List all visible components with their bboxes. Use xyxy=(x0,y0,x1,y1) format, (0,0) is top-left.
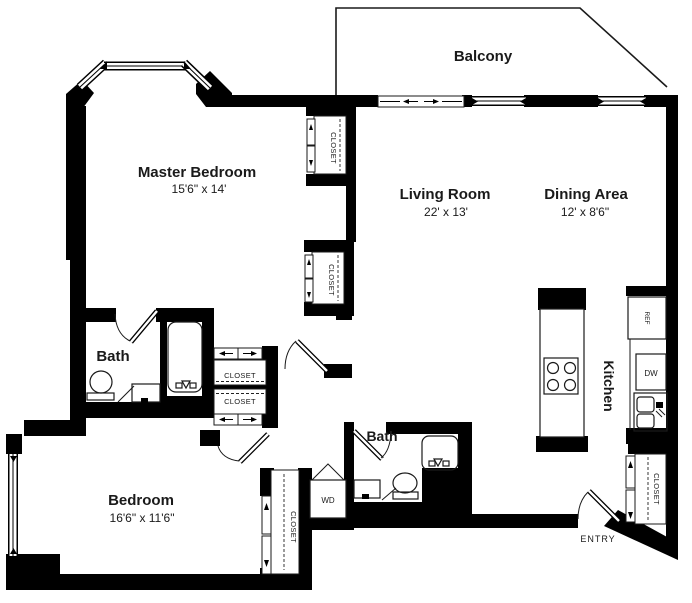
entry-closet-label: CLOSET xyxy=(652,473,661,505)
tub-faucet xyxy=(176,383,182,388)
kitchen: Kitchen REF DW xyxy=(540,297,667,437)
closet-sliding-door xyxy=(305,255,313,278)
toilet-icon xyxy=(393,473,417,493)
toilet-icon xyxy=(90,371,112,393)
sink-faucet-line xyxy=(659,409,665,415)
floor-plan-drawing: Balcony xyxy=(0,0,692,603)
hall-closet-upper-label: CLOSET xyxy=(224,371,256,380)
master-bath-label: Bath xyxy=(96,348,129,365)
vanity-counter-edge xyxy=(382,488,396,500)
bifold-door xyxy=(312,464,344,480)
master-bath-door xyxy=(115,311,157,342)
second-bath-label: Bath xyxy=(366,428,397,444)
closet-sliding-door xyxy=(307,146,315,172)
balcony: Balcony xyxy=(336,8,667,95)
entry-closet: CLOSET xyxy=(626,454,666,524)
closet-sliding-door xyxy=(262,496,271,534)
living-room-dims: 22' x 13' xyxy=(424,205,468,219)
floor-plan: Balcony xyxy=(0,0,692,603)
sink-basin xyxy=(637,397,654,412)
toilet-base xyxy=(87,393,114,400)
tub-faucet xyxy=(429,461,435,466)
master-bedroom-label: Master Bedroom xyxy=(138,164,256,181)
bedroom-label: Bedroom xyxy=(108,492,174,509)
balcony-sliding-door xyxy=(378,96,464,107)
bathtub-icon xyxy=(422,436,458,470)
sink-faucet xyxy=(656,402,663,408)
living-room-label: Living Room xyxy=(400,186,491,203)
sink-faucet xyxy=(141,398,148,403)
sink-faucet xyxy=(362,494,369,499)
sink-faucet-line xyxy=(656,411,662,417)
dining-window xyxy=(598,98,646,105)
entry-door xyxy=(578,491,619,521)
bedroom-dims: 16'6" x 11'6" xyxy=(110,511,175,525)
bay-window-left xyxy=(80,63,106,87)
bedroom-door xyxy=(218,434,268,462)
washer-dryer-label: WD xyxy=(321,496,335,505)
balcony-label: Balcony xyxy=(454,48,513,65)
tub-faucet xyxy=(443,461,449,466)
dishwasher-label: DW xyxy=(644,369,658,378)
washer-dryer: WD xyxy=(310,464,346,518)
closet-sliding-door xyxy=(305,279,313,302)
sink-basin xyxy=(637,414,654,428)
tub-faucet xyxy=(190,383,196,388)
living-room-window-1 xyxy=(472,98,526,105)
master-bedroom-door xyxy=(285,341,327,371)
master-closet-upper-label: CLOSET xyxy=(329,132,338,164)
bedroom-closet-label: CLOSET xyxy=(289,511,298,543)
entry-label: ENTRY xyxy=(580,534,615,544)
refrigerator-label: REF xyxy=(643,312,650,325)
closet-sliding-door xyxy=(307,119,315,145)
bedroom-window xyxy=(7,446,20,562)
closet-sliding-door xyxy=(626,456,635,488)
master-bedroom-dims: 15'6" x 14' xyxy=(172,182,227,196)
kitchen-label: Kitchen xyxy=(601,360,617,411)
hall-closet-lower-label: CLOSET xyxy=(224,397,256,406)
closet-sliding-door xyxy=(262,536,271,574)
master-closet-lower: CLOSET xyxy=(305,252,344,304)
master-closet-upper: CLOSET xyxy=(307,116,346,174)
dining-area-label: Dining Area xyxy=(544,186,628,203)
master-closet-lower-label: CLOSET xyxy=(327,264,336,296)
dining-area-dims: 12' x 8'6" xyxy=(561,205,609,219)
tub-faucet xyxy=(182,381,190,388)
